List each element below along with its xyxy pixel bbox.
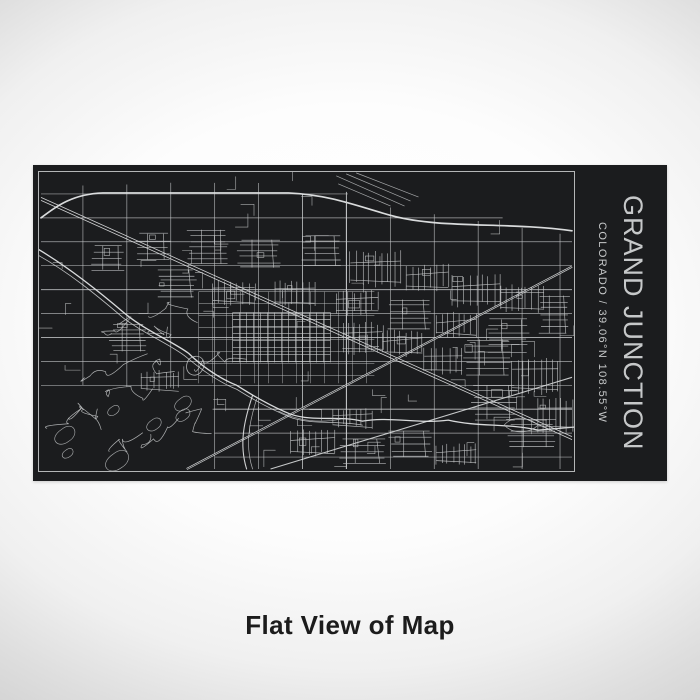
plate-title: GRAND JUNCTION — [617, 195, 648, 451]
city-street-map — [39, 172, 574, 471]
plate-subtitle: COLORADO / 39.06°N 108.55°W — [596, 222, 608, 423]
caption-text: Flat View of Map — [0, 610, 700, 641]
map-frame-border — [38, 171, 575, 472]
engraved-map-plate: COLORADO / 39.06°N 108.55°W GRAND JUNCTI… — [33, 165, 667, 481]
plate-label-column: COLORADO / 39.06°N 108.55°W GRAND JUNCTI… — [577, 165, 667, 481]
